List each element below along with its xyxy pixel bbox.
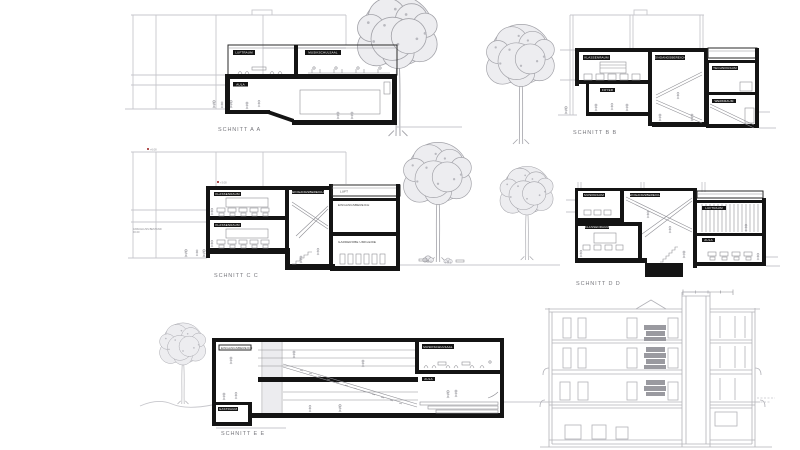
room-label: GASTRAUM	[219, 407, 238, 411]
section-label: SCHNITT E E	[221, 431, 265, 437]
room-label: EINGANGSBEREICH	[338, 203, 369, 207]
room-label: AULA	[236, 82, 244, 86]
section-d: MUSIKRAUM KLASSENRAUM EINGANGSBEREICH	[575, 188, 780, 295]
shrubs	[419, 256, 464, 264]
background-building-a	[125, 10, 346, 109]
existing-building-elevation	[540, 292, 775, 447]
room-label: LUFT	[340, 190, 348, 194]
room-label: AULA	[704, 238, 712, 242]
room-label: FOYER	[602, 88, 614, 92]
room-label: LUFTRAUM	[235, 51, 253, 55]
room-label: KLASSENRAUM	[584, 56, 609, 60]
section-label: SCHNITT C C	[214, 273, 259, 279]
tree	[160, 323, 206, 404]
tree	[404, 142, 472, 262]
room-label: TECHNIKRAUM	[713, 66, 737, 70]
room-label: AULA	[424, 377, 432, 381]
room-label: WERKRAUM	[714, 99, 733, 103]
room-label: GARDEROBE UMKLEIDE	[338, 240, 376, 244]
section-label: SCHNITT A A	[218, 127, 261, 133]
level-annotation: +3.08	[220, 181, 227, 185]
background-building-c	[128, 152, 346, 258]
background-building-b	[558, 10, 704, 115]
room-label: MUSIKRAUM	[584, 193, 604, 197]
room-label: EINGANGSBEREICH	[292, 190, 323, 194]
section-c: +6.08 +3.08 ANSCHLUSS BESTAND ±0.00 KLAS…	[133, 148, 560, 280]
room-label: MUSIKSCHULSAAL	[308, 51, 338, 55]
section-label: SCHNITT B B	[573, 130, 617, 136]
level-marker	[217, 181, 219, 183]
note-annotation: ±0.00	[133, 230, 140, 234]
room-label: KLASSENRAUM	[215, 192, 240, 196]
level-annotation: +6.08	[150, 148, 157, 152]
room-label: EINGANGSBEREICH	[221, 346, 252, 350]
section-label: SCHNITT D D	[576, 281, 621, 287]
section-b: KLASSENRAUM FOYER EINGANGSBEREICH	[565, 48, 776, 136]
level-marker	[147, 148, 149, 150]
room-label: KLASSENRAUM	[215, 223, 240, 227]
room-label: EINGANGSBEREICH	[654, 56, 685, 60]
room-label: MUSIKSCHULSAAL	[423, 345, 453, 349]
tree	[500, 166, 553, 260]
room-label: EINGANGSBEREICH	[629, 193, 660, 197]
room-label: LUFTRAUM	[705, 206, 723, 210]
architectural-sections-sheet: LUFTRAUM MUSIKSCHULSAAL AULA SCHNITT A A…	[0, 0, 800, 450]
tree	[487, 24, 555, 144]
room-label: KLASSENRAUM	[585, 225, 610, 229]
